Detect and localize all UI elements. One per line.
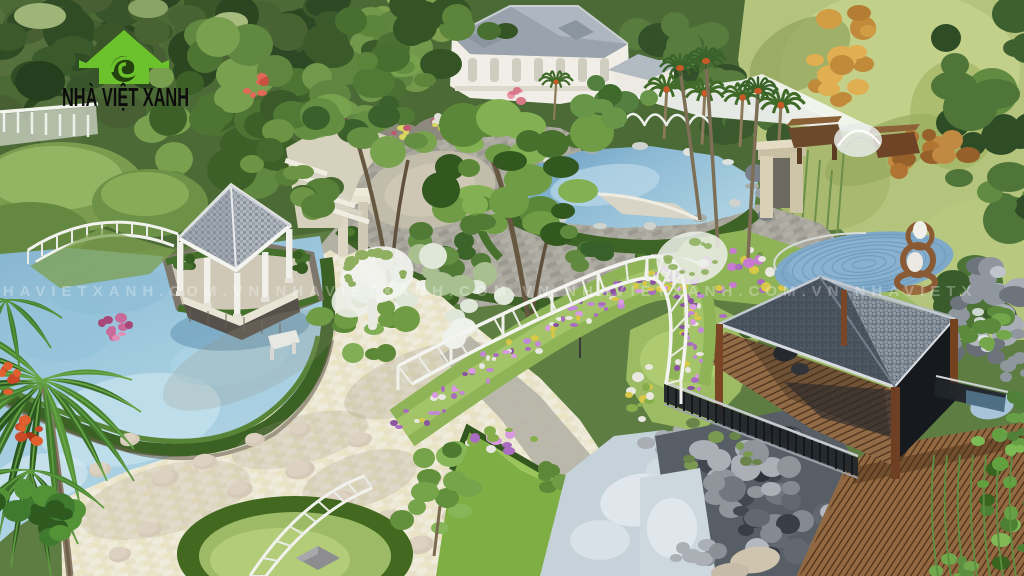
svg-text:NHAVIETXANH.COM.VN NHAVIETXANH: NHAVIETXANH.COM.VN NHAVIETXANH.COM.VN NH… [0,283,977,300]
svg-text:NHÀ VIỆT XANH: NHÀ VIỆT XANH [62,82,189,112]
